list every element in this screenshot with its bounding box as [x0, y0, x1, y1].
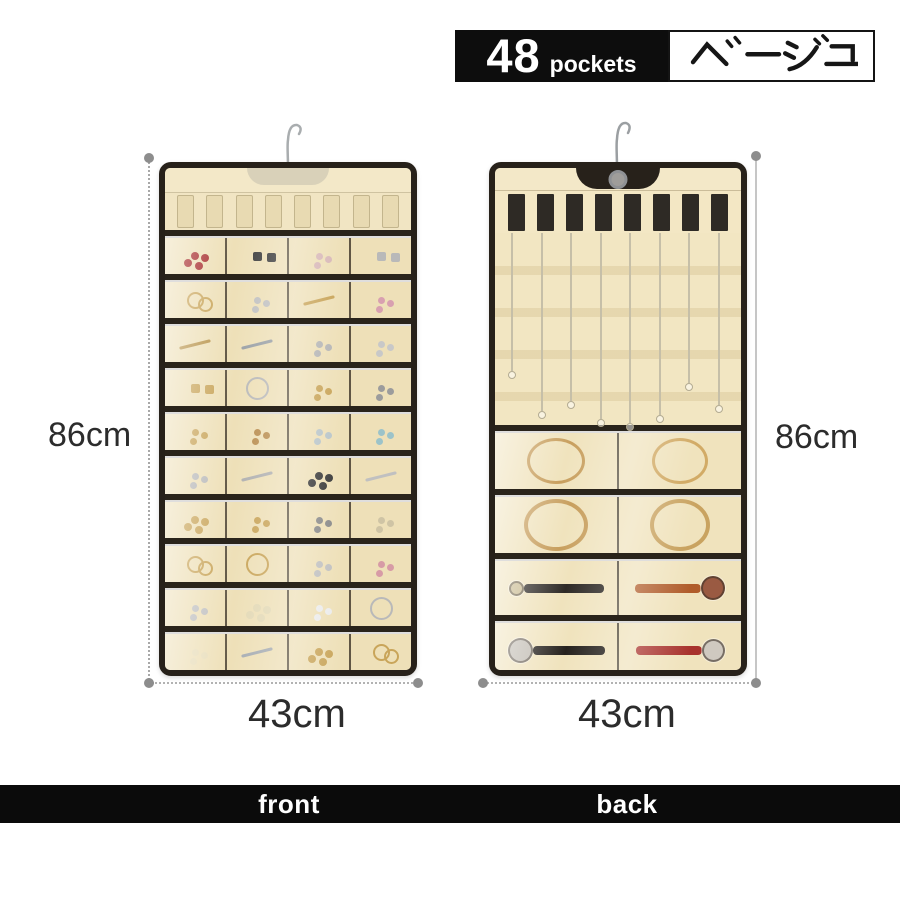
- jewelry-item: [378, 385, 385, 392]
- jewelry-item: [191, 252, 199, 260]
- pocket-row-trim: [165, 230, 411, 238]
- jewelry-pocket: [351, 282, 411, 318]
- back-height-label: 86cm: [775, 418, 858, 457]
- jewelry-item: [378, 429, 385, 436]
- pocket-row-trim: [165, 626, 411, 634]
- back-view-caption: back: [596, 785, 657, 823]
- jewelry-item: [315, 648, 323, 656]
- jewelry-item: [316, 385, 323, 392]
- jewelry-pocket: [289, 282, 351, 318]
- elastic-loop: [236, 195, 253, 228]
- dimension-dot: [478, 678, 488, 688]
- wrist-watch: [509, 581, 604, 596]
- wide-pocket: [495, 623, 619, 670]
- jewelry-item: [377, 252, 386, 261]
- jewelry-item: [378, 341, 385, 348]
- pocket-row-trim: [165, 274, 411, 282]
- velcro-tab: [537, 194, 554, 231]
- jewelry-item: [303, 295, 335, 306]
- pocket-row-trim: [165, 582, 411, 590]
- color-name-katakana-glyphs: [686, 33, 858, 79]
- necklace-chain: [688, 233, 690, 383]
- front-pocket-row: [165, 634, 411, 670]
- jewelry-pocket: [165, 502, 227, 538]
- necklace-chain: [659, 233, 661, 415]
- jewelry-pocket: [227, 414, 289, 450]
- back-velcro-tabs-row: [495, 190, 741, 233]
- dimension-dot: [144, 153, 154, 163]
- jewelry-item: [365, 471, 397, 482]
- pocket-row-trim: [165, 318, 411, 326]
- jewelry-pocket: [289, 634, 351, 670]
- jewelry-pocket: [351, 634, 411, 670]
- jewelry-item: [316, 429, 323, 436]
- back-pocket-row: [495, 623, 741, 670]
- velcro-tab: [653, 194, 670, 231]
- back-width-label: 43cm: [578, 692, 676, 737]
- jewelry-item: [316, 341, 323, 348]
- elastic-loop: [177, 195, 194, 228]
- back-pocket-row: [495, 497, 741, 553]
- jewelry-item: [378, 517, 385, 524]
- jewelry-pocket: [227, 282, 289, 318]
- front-pocket-row: [165, 502, 411, 538]
- hanger-hook-front: [268, 114, 308, 168]
- jewelry-item: [378, 561, 385, 568]
- jewelry-item: [254, 429, 261, 436]
- watch-face: [508, 638, 533, 663]
- velcro-tab: [711, 194, 728, 231]
- jewelry-pocket: [289, 370, 351, 406]
- jewelry-pocket: [227, 458, 289, 494]
- front-hook-shade: [247, 168, 329, 185]
- elastic-loop: [294, 195, 311, 228]
- jewelry-pocket: [227, 634, 289, 670]
- hanger-grommet: [609, 170, 628, 189]
- elastic-loop: [382, 195, 399, 228]
- wide-pocket: [619, 433, 741, 489]
- jewelry-item: [373, 644, 390, 661]
- jewelry-pocket: [351, 326, 411, 362]
- jewelry-item: [191, 384, 200, 393]
- jewelry-item: [192, 473, 199, 480]
- velcro-tab: [624, 194, 641, 231]
- dimension-line-back-height: [755, 157, 757, 683]
- jewelry-pocket: [351, 546, 411, 582]
- wide-pocket: [619, 623, 741, 670]
- hanger-hook-back: [597, 112, 637, 168]
- front-pocket-row: [165, 546, 411, 582]
- jewelry-pocket: [165, 590, 227, 626]
- wide-pocket: [619, 497, 741, 553]
- watch-face: [701, 576, 725, 600]
- pocket-row-trim: [495, 489, 741, 497]
- jewelry-item: [179, 339, 211, 350]
- pocket-count-badge: 48 pockets: [455, 30, 668, 82]
- color-name-badge: ベージュ: [668, 30, 875, 82]
- front-pocket-row: [165, 590, 411, 626]
- front-pocket-row: [165, 458, 411, 494]
- jewelry-item: [187, 292, 204, 309]
- jewelry-pocket: [165, 458, 227, 494]
- jewelry-pocket: [351, 458, 411, 494]
- jewelry-item: [187, 556, 204, 573]
- front-pocket-row: [165, 238, 411, 274]
- pocket-row-trim: [165, 494, 411, 502]
- pocket-row-trim: [495, 553, 741, 561]
- pocket-count-number: 48: [486, 30, 540, 82]
- jewelry-item: [192, 605, 199, 612]
- necklace-chain: [570, 233, 572, 401]
- jewelry-item: [241, 471, 273, 482]
- necklace-chain: [600, 233, 602, 419]
- jewelry-pocket: [227, 326, 289, 362]
- back-pocket-row: [495, 561, 741, 615]
- pocket-row-trim: [495, 615, 741, 623]
- jewelry-pocket: [227, 370, 289, 406]
- jewelry-pocket: [227, 590, 289, 626]
- jewelry-pocket: [351, 502, 411, 538]
- jewelry-pocket: [351, 590, 411, 626]
- dimension-dot: [751, 678, 761, 688]
- jewelry-pocket: [289, 590, 351, 626]
- front-view-caption: front: [258, 785, 320, 823]
- organizer-back-view: [489, 162, 747, 676]
- jewelry-pocket: [289, 326, 351, 362]
- velcro-tab: [595, 194, 612, 231]
- dimension-dot: [751, 151, 761, 161]
- jewelry-item: [246, 377, 269, 400]
- jewelry-item: [192, 429, 199, 436]
- back-hanger-notch: [576, 168, 660, 189]
- front-pocket-row: [165, 414, 411, 450]
- front-pocket-row: [165, 282, 411, 318]
- front-width-label: 43cm: [248, 692, 346, 737]
- jewelry-pocket: [165, 282, 227, 318]
- pocket-count-unit: pockets: [550, 38, 637, 90]
- jewelry-pocket: [289, 502, 351, 538]
- front-top-band: [165, 168, 411, 193]
- jewelry-item: [253, 252, 262, 261]
- jewelry-item: [254, 297, 261, 304]
- back-pocket-row: [495, 433, 741, 489]
- watch-strap: [635, 584, 701, 593]
- back-pocket-rows: [495, 425, 741, 670]
- wide-pocket: [495, 497, 619, 553]
- watch-face: [702, 639, 725, 662]
- watch-face: [509, 581, 524, 596]
- necklace-chain: [718, 233, 720, 405]
- elastic-loop: [323, 195, 340, 228]
- jewelry-pocket: [165, 546, 227, 582]
- jewelry-item: [316, 605, 323, 612]
- jewelry-pocket: [227, 546, 289, 582]
- back-top-band: [495, 168, 741, 190]
- pocket-row-trim: [165, 406, 411, 414]
- watch-strap: [524, 584, 604, 593]
- wrist-watch: [635, 576, 725, 600]
- bangle-bracelet: [524, 499, 588, 551]
- footer-bar: front back: [0, 785, 900, 823]
- jewelry-item: [191, 516, 199, 524]
- jewelry-pocket: [351, 414, 411, 450]
- watch-strap: [636, 646, 702, 655]
- wrist-watch: [508, 638, 605, 663]
- jewelry-pocket: [289, 414, 351, 450]
- jewelry-pocket: [289, 546, 351, 582]
- jewelry-pocket: [165, 414, 227, 450]
- pocket-row-trim: [495, 425, 741, 433]
- front-pocket-rows: [165, 230, 411, 670]
- front-elastic-loops-row: [165, 193, 411, 230]
- necklace-chain: [511, 233, 513, 371]
- jewelry-item: [315, 472, 323, 480]
- jewelry-item: [246, 553, 269, 576]
- jewelry-pocket: [165, 634, 227, 670]
- jewelry-pocket: [351, 370, 411, 406]
- jewelry-pocket: [227, 502, 289, 538]
- dimension-dot: [413, 678, 423, 688]
- dimension-dot: [144, 678, 154, 688]
- wide-pocket: [619, 561, 741, 615]
- jewelry-item: [316, 517, 323, 524]
- jewelry-item: [192, 649, 199, 656]
- velcro-tab: [682, 194, 699, 231]
- dimension-line-front-width: [152, 682, 416, 684]
- watch-strap: [533, 646, 605, 655]
- jewelry-item: [316, 561, 323, 568]
- velcro-tab: [566, 194, 583, 231]
- organizer-front-view: [159, 162, 417, 676]
- bangle-bracelet: [527, 438, 585, 484]
- wrist-watch: [636, 639, 725, 662]
- jewelry-pocket: [227, 238, 289, 274]
- bangle-bracelet: [652, 438, 708, 484]
- pocket-row-trim: [165, 538, 411, 546]
- wide-pocket: [495, 433, 619, 489]
- velcro-tab: [508, 194, 525, 231]
- pocket-row-trim: [165, 362, 411, 370]
- jewelry-pocket: [289, 238, 351, 274]
- dimension-line-front-height: [148, 159, 150, 683]
- necklace-chain: [541, 233, 543, 411]
- front-height-label: 86cm: [48, 416, 131, 455]
- necklace-chain: [629, 233, 631, 423]
- jewelry-item: [253, 604, 261, 612]
- jewelry-item: [370, 597, 393, 620]
- jewelry-pocket: [289, 458, 351, 494]
- jewelry-item: [241, 339, 273, 350]
- jewelry-pocket: [165, 326, 227, 362]
- wide-pocket: [495, 561, 619, 615]
- bangle-bracelet: [650, 499, 710, 551]
- elastic-loop: [353, 195, 370, 228]
- pocket-row-trim: [165, 450, 411, 458]
- elastic-loop: [206, 195, 223, 228]
- jewelry-item: [241, 647, 273, 658]
- elastic-loop: [265, 195, 282, 228]
- dimension-line-back-width: [483, 682, 753, 684]
- back-necklace-area: [495, 233, 741, 425]
- jewelry-pocket: [351, 238, 411, 274]
- jewelry-item: [316, 253, 323, 260]
- jewelry-pocket: [165, 370, 227, 406]
- jewelry-pocket: [165, 238, 227, 274]
- jewelry-item: [254, 517, 261, 524]
- front-pocket-row: [165, 370, 411, 406]
- jewelry-item: [378, 297, 385, 304]
- front-pocket-row: [165, 326, 411, 362]
